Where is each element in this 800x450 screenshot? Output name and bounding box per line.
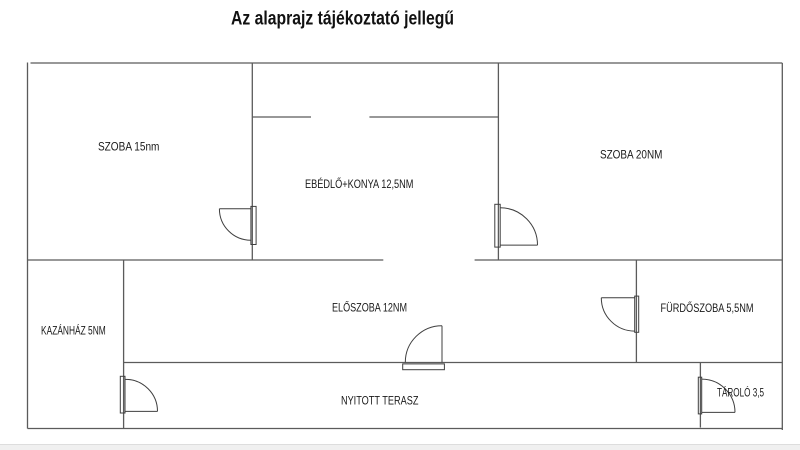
svg-text:KAZÁNHÁZ 5NM: KAZÁNHÁZ 5NM xyxy=(41,324,106,337)
svg-text:TÁROLÓ 3,5: TÁROLÓ 3,5 xyxy=(717,386,764,399)
svg-text:FÜRDŐSZOBA 5,5NM: FÜRDŐSZOBA 5,5NM xyxy=(661,301,754,315)
svg-text:NYITOTT TERASZ: NYITOTT TERASZ xyxy=(341,395,419,407)
svg-text:Az alaprajz tájékoztató jelleg: Az alaprajz tájékoztató jellegű xyxy=(231,9,454,30)
svg-text:EBÉDLŐ+KONYA 12,5NM: EBÉDLŐ+KONYA 12,5NM xyxy=(305,177,414,191)
svg-text:ELŐSZOBA 12NM: ELŐSZOBA 12NM xyxy=(332,301,407,315)
svg-text:SZOBA 20NM: SZOBA 20NM xyxy=(600,149,663,161)
svg-text:SZOBA 15nm: SZOBA 15nm xyxy=(98,141,160,153)
